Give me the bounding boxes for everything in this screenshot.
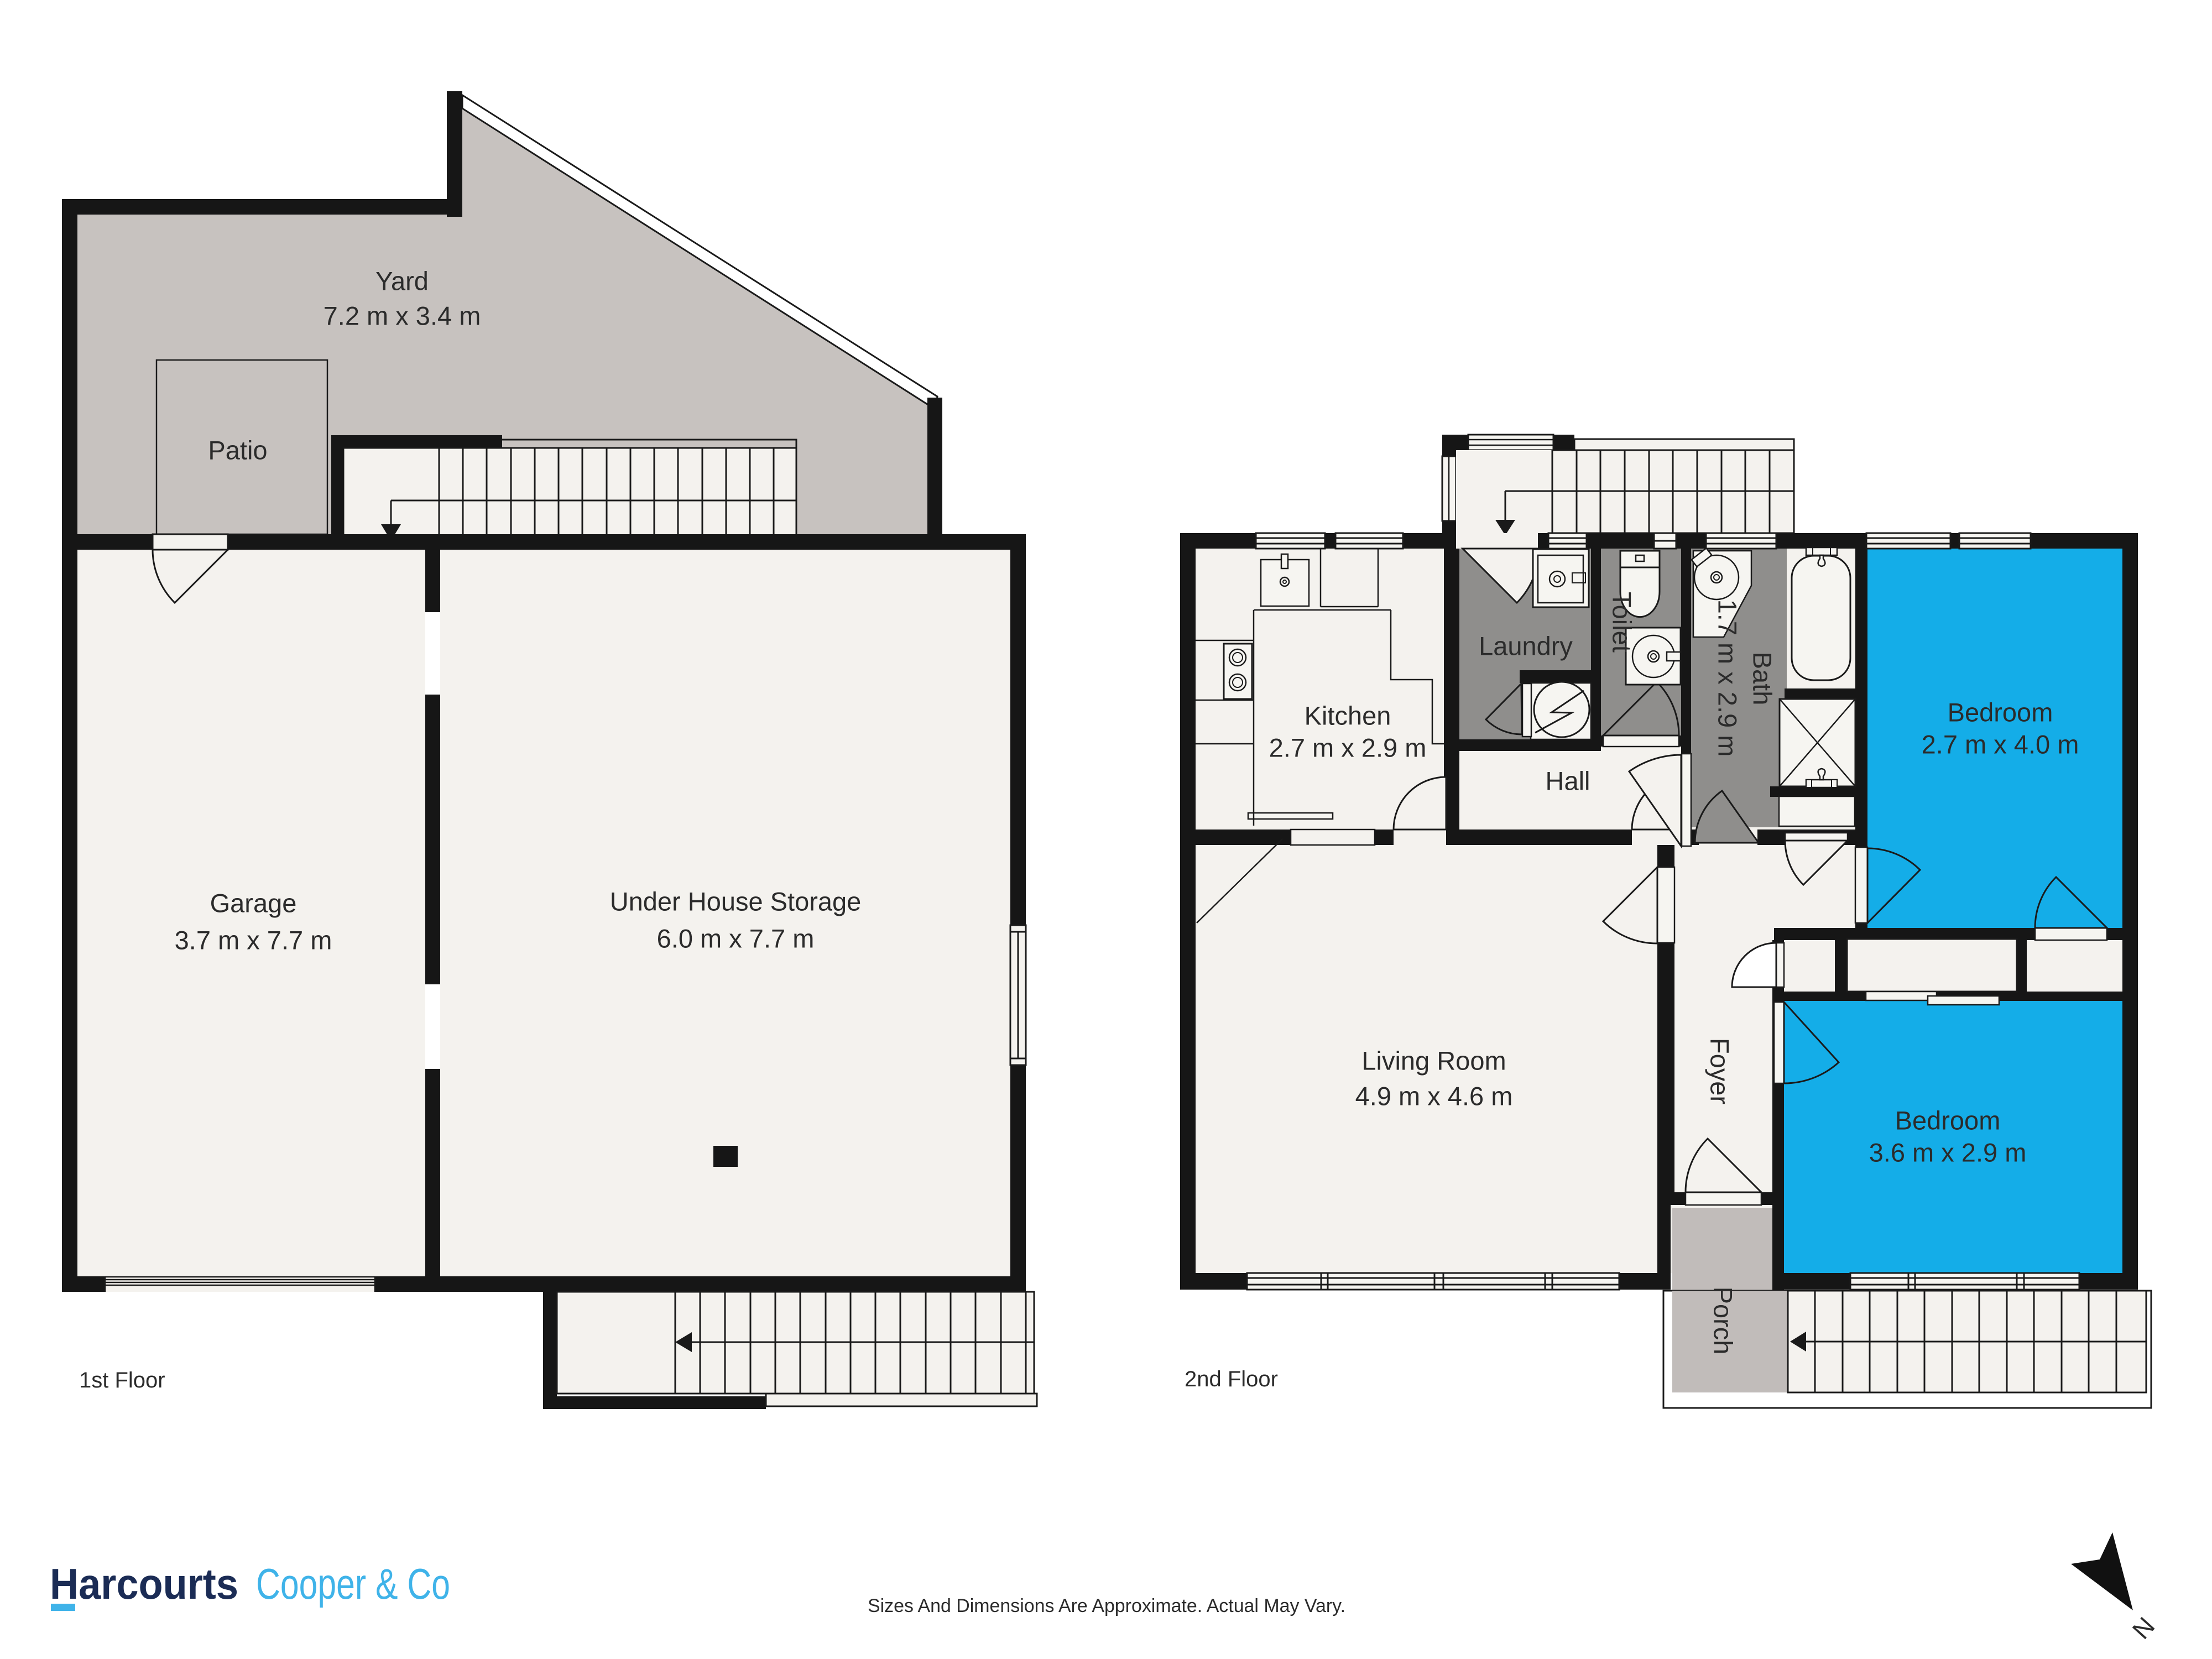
- svg-text:2.7 m x 4.0 m: 2.7 m x 4.0 m: [1922, 730, 2079, 759]
- svg-text:Yard: Yard: [375, 267, 429, 296]
- svg-text:Under House Storage: Under House Storage: [610, 887, 862, 916]
- svg-text:3.7 m x 7.7 m: 3.7 m x 7.7 m: [175, 926, 332, 955]
- svg-text:Cooper & Co: Cooper & Co: [256, 1559, 450, 1608]
- svg-text:2.7 m x 2.9 m: 2.7 m x 2.9 m: [1269, 733, 1427, 763]
- svg-text:Bedroom: Bedroom: [1895, 1106, 2001, 1135]
- svg-text:Toilet: Toilet: [1608, 592, 1637, 653]
- svg-text:Harcourts: Harcourts: [50, 1559, 238, 1608]
- svg-text:6.0 m x 7.7 m: 6.0 m x 7.7 m: [657, 924, 815, 953]
- svg-text:Laundry: Laundry: [1479, 632, 1573, 661]
- svg-text:2nd Floor: 2nd Floor: [1185, 1367, 1278, 1391]
- svg-text:4.9 m x 4.6 m: 4.9 m x 4.6 m: [1355, 1082, 1513, 1111]
- svg-text:Porch: Porch: [1709, 1287, 1738, 1355]
- svg-text:Sizes And Dimensions Are Appro: Sizes And Dimensions Are Approximate. Ac…: [868, 1595, 1345, 1616]
- svg-text:3.6 m x 2.9 m: 3.6 m x 2.9 m: [1869, 1138, 2027, 1167]
- svg-text:1.7 m x 2.9 m: 1.7 m x 2.9 m: [1713, 599, 1743, 757]
- svg-text:Foyer: Foyer: [1705, 1038, 1735, 1104]
- svg-text:Patio: Patio: [208, 436, 267, 465]
- svg-text:Garage: Garage: [210, 889, 297, 918]
- svg-text:Bedroom: Bedroom: [1948, 698, 2053, 727]
- svg-text:Bath: Bath: [1748, 652, 1777, 706]
- svg-text:Hall: Hall: [1546, 766, 1590, 796]
- svg-text:7.2 m x 3.4 m: 7.2 m x 3.4 m: [324, 301, 481, 331]
- svg-text:1st Floor: 1st Floor: [79, 1368, 165, 1392]
- svg-text:Kitchen: Kitchen: [1305, 701, 1391, 731]
- svg-text:Living Room: Living Room: [1361, 1046, 1506, 1076]
